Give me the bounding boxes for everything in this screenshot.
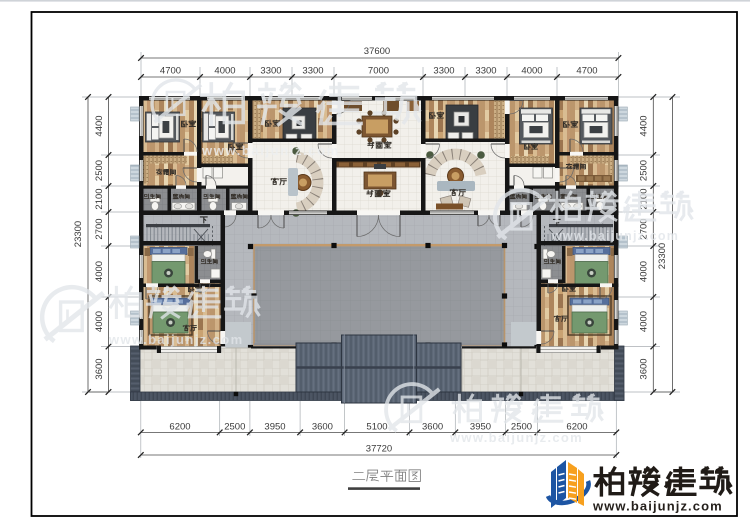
- svg-text:2100: 2100: [94, 188, 105, 209]
- svg-text:3600: 3600: [422, 422, 443, 433]
- svg-text:23300: 23300: [657, 243, 668, 269]
- svg-text:3950: 3950: [264, 422, 285, 433]
- svg-text:4400: 4400: [639, 115, 650, 136]
- svg-text:6200: 6200: [169, 422, 190, 433]
- svg-text:3300: 3300: [302, 66, 323, 77]
- svg-text:7000: 7000: [368, 66, 389, 77]
- svg-text:2500: 2500: [639, 160, 650, 181]
- svg-text:www.baijunjz.com: www.baijunjz.com: [592, 499, 723, 514]
- svg-text:4000: 4000: [639, 311, 650, 332]
- svg-text:4000: 4000: [521, 66, 542, 77]
- svg-text:4700: 4700: [576, 66, 597, 77]
- svg-text:2500: 2500: [94, 160, 105, 181]
- svg-text:2700: 2700: [94, 218, 105, 239]
- svg-text:4700: 4700: [160, 66, 181, 77]
- svg-text:www.baijunjz.com: www.baijunjz.com: [108, 332, 244, 347]
- svg-text:4000: 4000: [94, 261, 105, 282]
- svg-text:3300: 3300: [475, 66, 496, 77]
- svg-text:3600: 3600: [312, 422, 333, 433]
- svg-text:3300: 3300: [260, 66, 281, 77]
- svg-text:3600: 3600: [639, 358, 650, 379]
- svg-text:5100: 5100: [366, 422, 387, 433]
- svg-text:4000: 4000: [639, 261, 650, 282]
- svg-text:4400: 4400: [94, 115, 105, 136]
- svg-text:37600: 37600: [364, 46, 390, 57]
- svg-text:37720: 37720: [366, 444, 392, 455]
- svg-text:www.baijunjz.com: www.baijunjz.com: [449, 430, 583, 445]
- svg-text:www.baijunjz.com: www.baijunjz.com: [201, 143, 340, 158]
- svg-text:4000: 4000: [214, 66, 235, 77]
- svg-text:23300: 23300: [73, 221, 84, 247]
- svg-text:4000: 4000: [94, 311, 105, 332]
- svg-text:www.baijunjz.com: www.baijunjz.com: [551, 229, 679, 243]
- svg-text:3300: 3300: [433, 66, 454, 77]
- svg-text:3600: 3600: [94, 358, 105, 379]
- svg-text:2500: 2500: [224, 422, 245, 433]
